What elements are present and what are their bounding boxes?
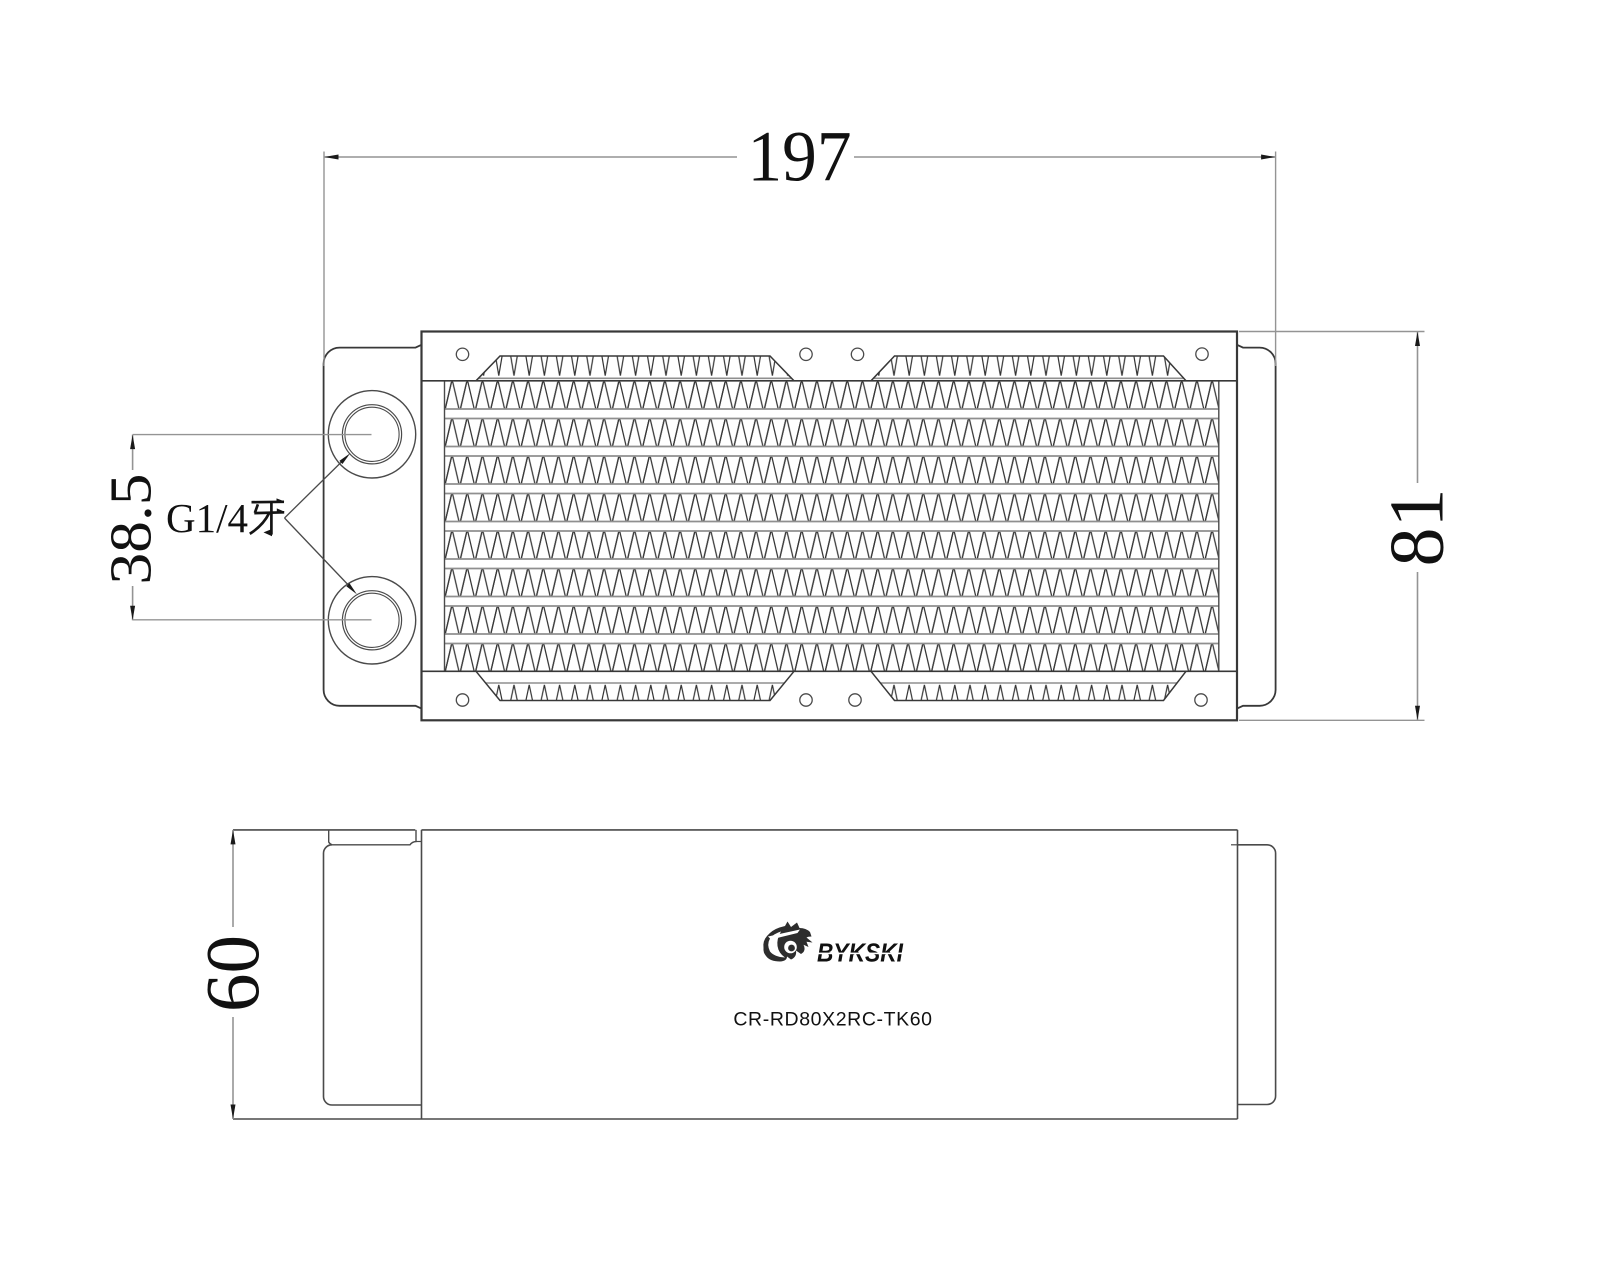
svg-text:197: 197 [748,116,852,196]
svg-text:60: 60 [192,935,276,1012]
svg-text:CR-RD80X2RC-TK60: CR-RD80X2RC-TK60 [733,1008,932,1030]
svg-text:38.5: 38.5 [98,474,164,585]
svg-text:81: 81 [1374,489,1460,567]
svg-text:G1/4: G1/4 [166,495,248,541]
